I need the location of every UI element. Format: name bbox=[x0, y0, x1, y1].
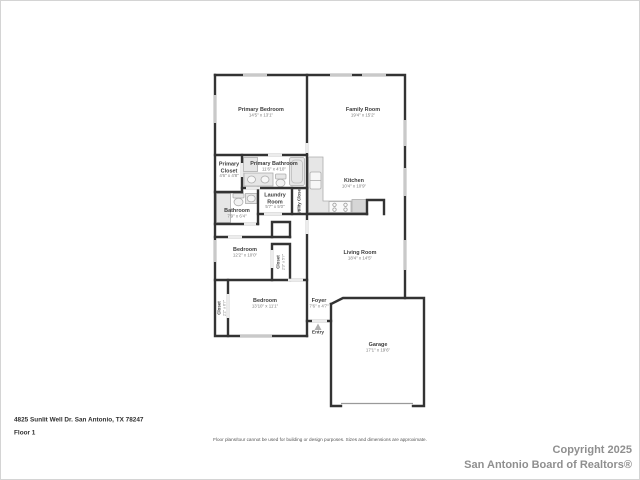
toilet-icon bbox=[233, 194, 244, 199]
room-dims: 2'2" x 6'7" bbox=[222, 300, 226, 316]
room-dims: 5'7" x 5'0" bbox=[263, 205, 287, 210]
room-dims: 13'10" x 11'1" bbox=[252, 304, 278, 309]
room-dims: 2'3" x 5'7" bbox=[281, 254, 285, 270]
room-label-primary-bedroom: Primary Bedroom 14'5" x 13'1" bbox=[238, 106, 284, 118]
room-label-primary-closet: Primary Closet 4'6" x 4'8" bbox=[215, 161, 242, 179]
room-label-entry: Entry bbox=[312, 330, 324, 336]
room-dims: 19'4" x 15'2" bbox=[346, 113, 380, 118]
copyright-line1: Copyright 2025 bbox=[464, 443, 632, 457]
copyright-notice: Copyright 2025 San Antonio Board of Real… bbox=[464, 443, 632, 472]
walls-layer bbox=[215, 75, 424, 406]
room-name: Primary Bathroom bbox=[250, 160, 297, 167]
room-name: Primary Bedroom bbox=[238, 106, 284, 113]
room-label-laundry-room: Laundry Room 5'7" x 5'0" bbox=[263, 192, 287, 210]
room-dims: 7'9" x 6'4" bbox=[224, 214, 250, 219]
floorplan-canvas: Primary Bedroom 14'5" x 13'1" Family Roo… bbox=[0, 0, 640, 480]
room-dims: 4'6" x 4'8" bbox=[215, 174, 242, 179]
room-dims: 12'2" x 10'0" bbox=[233, 253, 257, 258]
room-name: Kitchen bbox=[342, 177, 366, 184]
toilet-icon bbox=[234, 198, 243, 206]
room-dims: 10'4" x 10'9" bbox=[342, 184, 366, 189]
room-name: Bathroom bbox=[224, 207, 250, 214]
room-label-closet-bedroom-2: Closet 2'3" x 5'7" bbox=[276, 254, 286, 270]
room-label-closet-bedroom-3: Closet 2'2" x 6'7" bbox=[217, 300, 227, 316]
property-address: 4825 Sunlit Well Dr. San Antonio, TX 782… bbox=[14, 416, 143, 423]
stove-icon bbox=[329, 202, 351, 213]
room-name: Living Room bbox=[344, 249, 377, 256]
room-label-living-room: Living Room 18'4" x 14'5" bbox=[344, 249, 377, 261]
room-name: Laundry Room bbox=[263, 192, 287, 205]
entry-arrow-icon bbox=[315, 324, 322, 331]
room-label-foyer: Foyer 7'6" x 4'7" bbox=[309, 297, 328, 309]
room-label-bedroom-3: Bedroom 13'10" x 11'1" bbox=[252, 297, 278, 309]
room-dims: 18'4" x 14'5" bbox=[344, 256, 377, 261]
room-label-family-room: Family Room 19'4" x 15'2" bbox=[346, 106, 380, 118]
room-name: Garage bbox=[365, 341, 389, 348]
fridge-icon bbox=[352, 200, 367, 213]
room-name: Family Room bbox=[346, 106, 380, 113]
room-label-utility-closet: Utility Closet bbox=[297, 187, 302, 214]
room-name: Utility Closet bbox=[297, 187, 302, 214]
room-label-bathroom: Bathroom 7'9" x 6'4" bbox=[224, 207, 250, 219]
room-label-garage: Garage 17'1" x 19'6" bbox=[365, 341, 389, 353]
room-dims: 14'5" x 13'1" bbox=[238, 113, 284, 118]
room-name: Bedroom bbox=[252, 297, 278, 304]
room-name: Closet bbox=[217, 300, 222, 316]
room-dims: 17'1" x 19'6" bbox=[365, 348, 389, 353]
room-label-kitchen: Kitchen 10'4" x 10'9" bbox=[342, 177, 366, 189]
room-dims: 7'6" x 4'7" bbox=[309, 304, 328, 309]
toilet-icon bbox=[276, 174, 287, 179]
sink-icon bbox=[247, 195, 255, 202]
room-name: Bedroom bbox=[233, 246, 257, 253]
sink-icon bbox=[261, 176, 269, 183]
floor-label: Floor 1 bbox=[14, 429, 35, 436]
floorplan-drawing bbox=[0, 0, 640, 480]
room-dims: 11'6" x 4'10" bbox=[250, 167, 297, 172]
room-name: Primary Closet bbox=[215, 161, 242, 174]
room-label-primary-bathroom: Primary Bathroom 11'6" x 4'10" bbox=[250, 160, 297, 172]
toilet-icon bbox=[276, 179, 285, 187]
room-name: Foyer bbox=[309, 297, 328, 304]
sink-icon bbox=[248, 176, 256, 183]
room-label-bedroom-2: Bedroom 12'2" x 10'0" bbox=[233, 246, 257, 258]
room-name: Entry bbox=[312, 330, 324, 336]
disclaimer-text: Floor plans/tour cannot be used for buil… bbox=[213, 437, 427, 442]
copyright-line2: San Antonio Board of Realtors® bbox=[464, 458, 632, 472]
